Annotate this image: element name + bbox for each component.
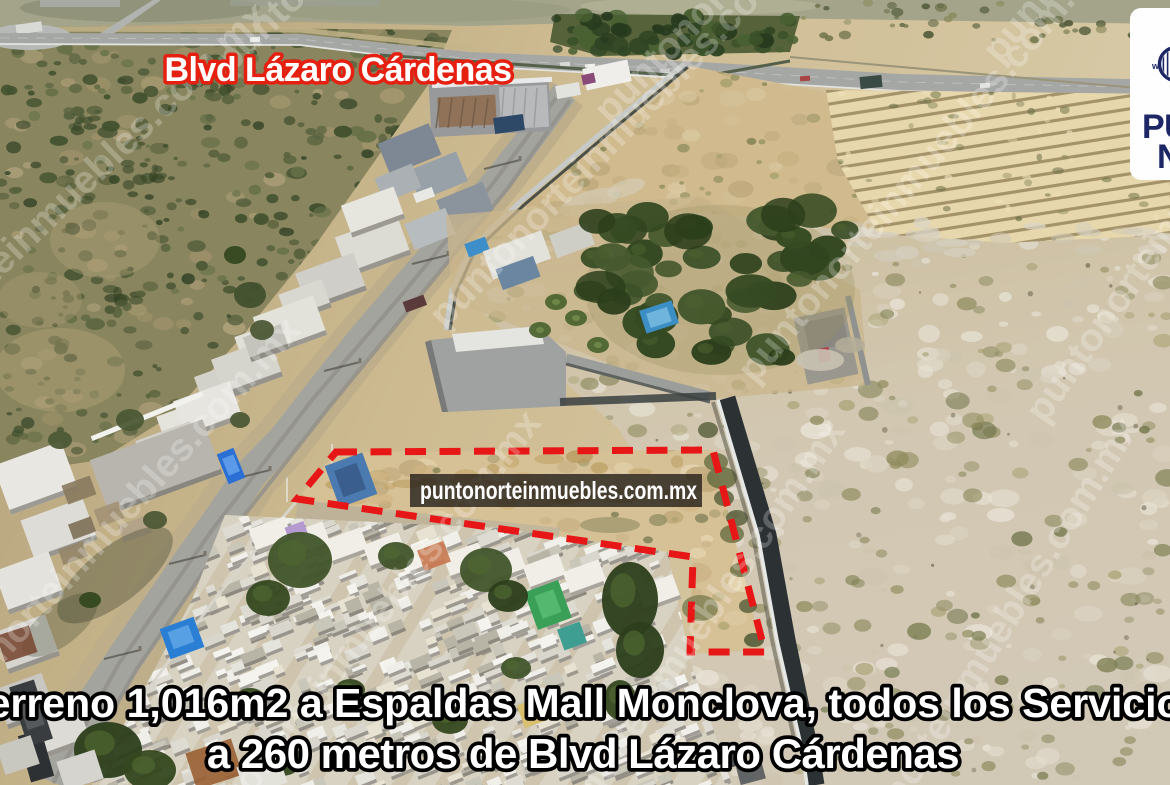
svg-text:N: N: [1157, 138, 1170, 176]
svg-text:a 260 metros de Blvd Lázaro Cá: a 260 metros de Blvd Lázaro Cárdenas: [207, 730, 959, 777]
svg-text:Blvd Lázaro Cárdenas: Blvd Lázaro Cárdenas: [164, 51, 511, 89]
svg-text:puntonorteinmuebles.com.mx: puntonorteinmuebles.com.mx: [420, 477, 697, 505]
svg-text:w: w: [1151, 61, 1160, 71]
svg-text:Terreno 1,016m2 a Espaldas Mal: Terreno 1,016m2 a Espaldas Mall Monclova…: [0, 680, 1170, 726]
